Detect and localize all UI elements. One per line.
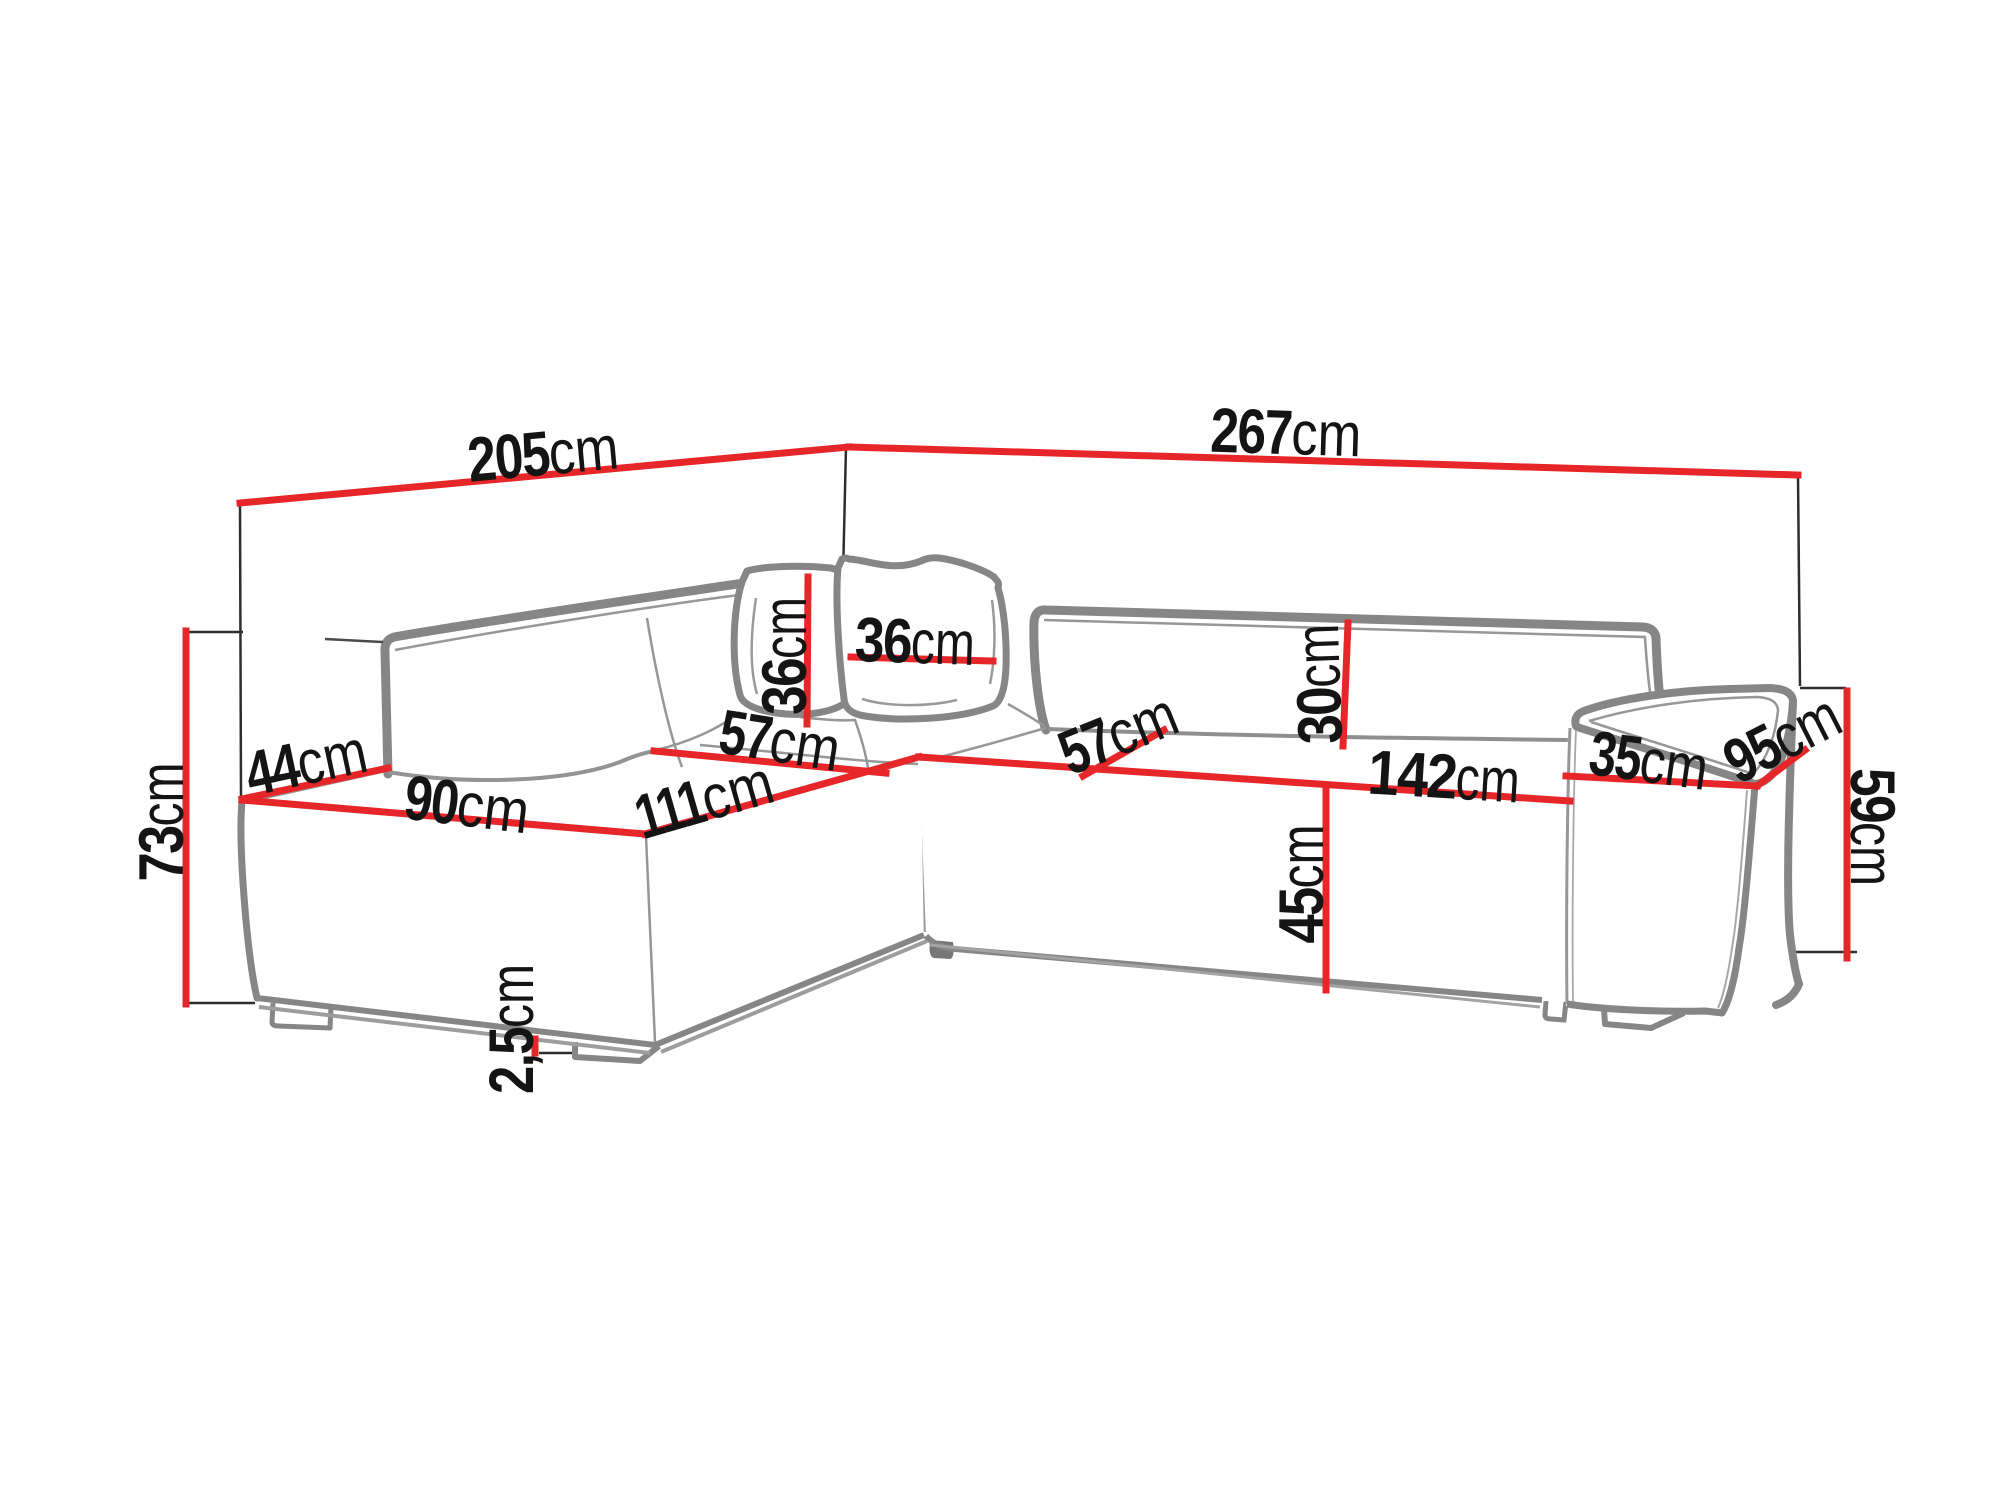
svg-text:142cm: 142cm [1366,737,1522,816]
svg-text:205cm: 205cm [465,412,622,495]
svg-text:45cm: 45cm [1267,825,1337,944]
svg-text:36cm: 36cm [854,605,976,679]
svg-text:2,5cm: 2,5cm [477,964,547,1094]
svg-text:73cm: 73cm [127,763,197,882]
svg-text:267cm: 267cm [1209,396,1362,471]
svg-text:59cm: 59cm [1837,768,1907,886]
svg-text:36cm: 36cm [750,597,820,715]
svg-text:30cm: 30cm [1282,623,1356,745]
